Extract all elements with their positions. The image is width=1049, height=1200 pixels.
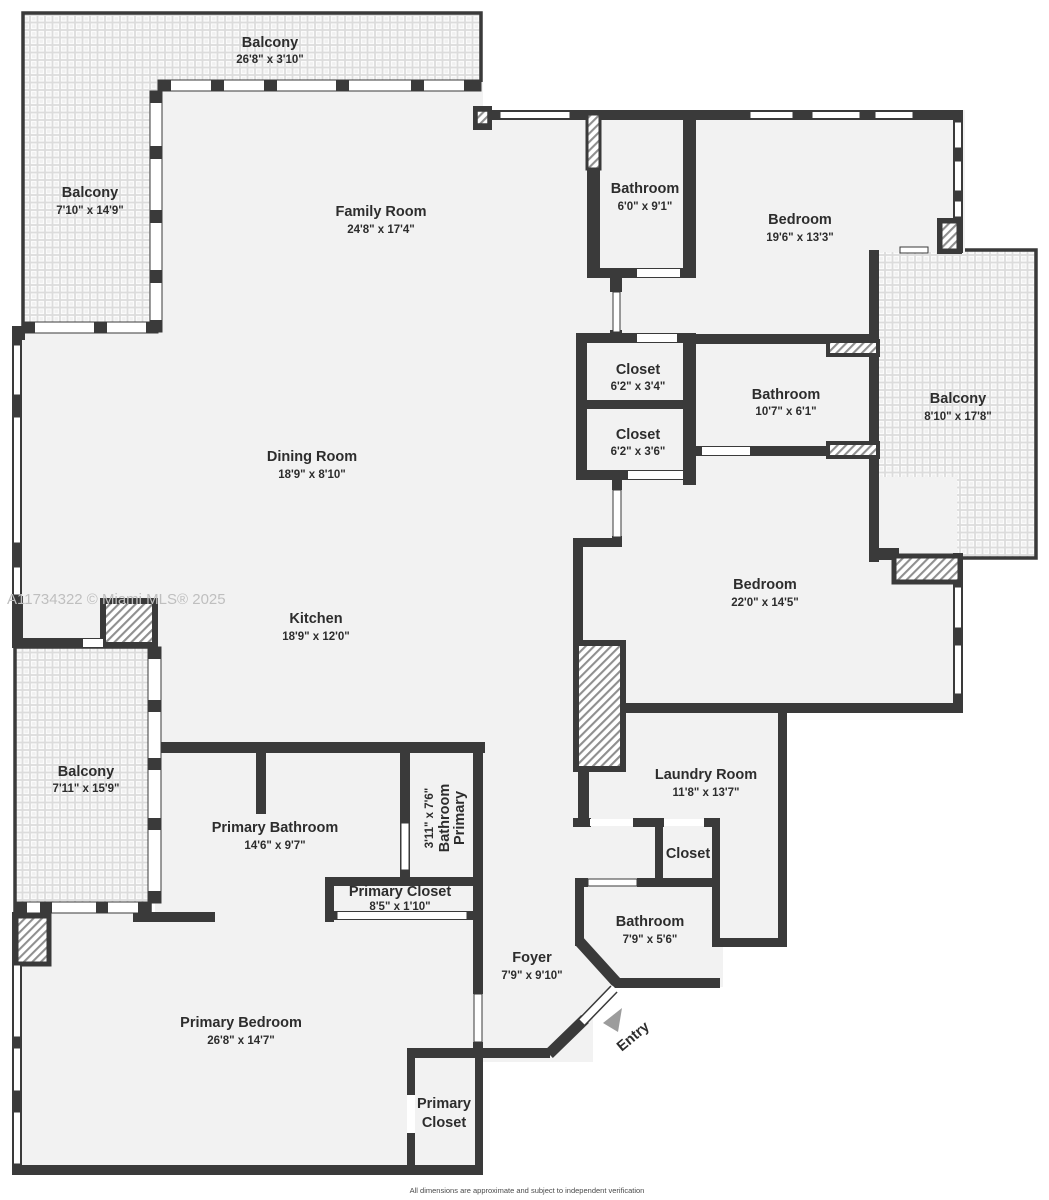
svg-text:19'6" x 13'3": 19'6" x 13'3": [766, 232, 834, 244]
svg-text:22'0" x 14'5": 22'0" x 14'5": [731, 597, 799, 609]
svg-text:26'8" x 14'7": 26'8" x 14'7": [207, 1035, 275, 1047]
svg-text:Bedroom: Bedroom: [733, 577, 797, 593]
svg-text:Balcony: Balcony: [930, 391, 986, 407]
room-label-balcony-bottom-left: Balcony 7'11" x 15'9": [53, 764, 120, 795]
room-label-bathroom-mid: Bathroom 10'7" x 6'1": [752, 387, 820, 418]
room-label-closet-2: Closet 6'2" x 3'6": [611, 427, 666, 458]
svg-text:11'8" x 13'7": 11'8" x 13'7": [673, 787, 740, 799]
svg-text:Primary: Primary: [417, 1096, 471, 1112]
svg-text:Bedroom: Bedroom: [768, 212, 832, 228]
svg-text:Family Room: Family Room: [335, 204, 426, 220]
svg-text:6'2" x 3'6": 6'2" x 3'6": [611, 446, 666, 458]
svg-text:Balcony: Balcony: [242, 35, 298, 51]
svg-text:6'0" x 9'1": 6'0" x 9'1": [618, 201, 673, 213]
svg-text:Bathroom: Bathroom: [616, 914, 684, 930]
svg-text:8'10" x 17'8": 8'10" x 17'8": [924, 411, 992, 423]
room-label-primary-bathroom-small: 3'11" x 7'6" Bathroom Primary: [424, 784, 468, 852]
room-label-closet-1: Closet 6'2" x 3'4": [611, 362, 666, 393]
svg-text:Primary: Primary: [452, 791, 468, 845]
room-label-balcony-top: Balcony 26'8" x 3'10": [236, 35, 304, 66]
svg-text:Bathroom: Bathroom: [437, 784, 453, 852]
svg-text:18'9" x 8'10": 18'9" x 8'10": [278, 469, 346, 481]
svg-text:Closet: Closet: [422, 1115, 466, 1131]
svg-text:18'9" x 12'0": 18'9" x 12'0": [282, 631, 350, 643]
svg-text:Dining Room: Dining Room: [267, 449, 357, 465]
svg-text:Closet: Closet: [616, 362, 660, 378]
svg-text:8'5" x 1'10": 8'5" x 1'10": [369, 901, 430, 913]
svg-text:Closet: Closet: [616, 427, 660, 443]
svg-text:Foyer: Foyer: [512, 950, 552, 966]
svg-text:Balcony: Balcony: [58, 764, 114, 780]
svg-text:24'8" x 17'4": 24'8" x 17'4": [347, 224, 415, 236]
svg-text:Bathroom: Bathroom: [611, 181, 679, 197]
svg-text:26'8" x 3'10": 26'8" x 3'10": [236, 54, 304, 66]
svg-text:Primary Closet: Primary Closet: [349, 884, 452, 900]
svg-text:Balcony: Balcony: [62, 185, 118, 201]
disclaimer-text: All dimensions are approximate and subje…: [410, 1186, 645, 1195]
svg-text:Closet: Closet: [666, 846, 710, 862]
svg-text:Bathroom: Bathroom: [752, 387, 820, 403]
svg-text:6'2" x 3'4": 6'2" x 3'4": [611, 381, 666, 393]
svg-text:Kitchen: Kitchen: [289, 611, 342, 627]
floor-plan: Entry Balcony 26'8" x 3'10" Balcony 7'10…: [0, 0, 1049, 1200]
svg-text:7'9" x 5'6": 7'9" x 5'6": [623, 934, 678, 946]
svg-text:7'10" x 14'9": 7'10" x 14'9": [56, 205, 124, 217]
svg-text:Primary Bedroom: Primary Bedroom: [180, 1015, 302, 1031]
svg-text:Laundry Room: Laundry Room: [655, 767, 757, 783]
svg-text:3'11" x 7'6": 3'11" x 7'6": [424, 788, 436, 849]
mls-watermark: A11734322 © Miami MLS® 2025: [7, 591, 226, 608]
room-label-closet-laundry: Closet: [666, 846, 710, 862]
svg-text:Primary Bathroom: Primary Bathroom: [212, 820, 339, 836]
svg-text:14'6" x 9'7": 14'6" x 9'7": [244, 840, 305, 852]
svg-text:7'9" x 9'10": 7'9" x 9'10": [501, 970, 562, 982]
svg-text:7'11" x 15'9": 7'11" x 15'9": [53, 783, 120, 795]
svg-text:10'7" x 6'1": 10'7" x 6'1": [755, 406, 816, 418]
